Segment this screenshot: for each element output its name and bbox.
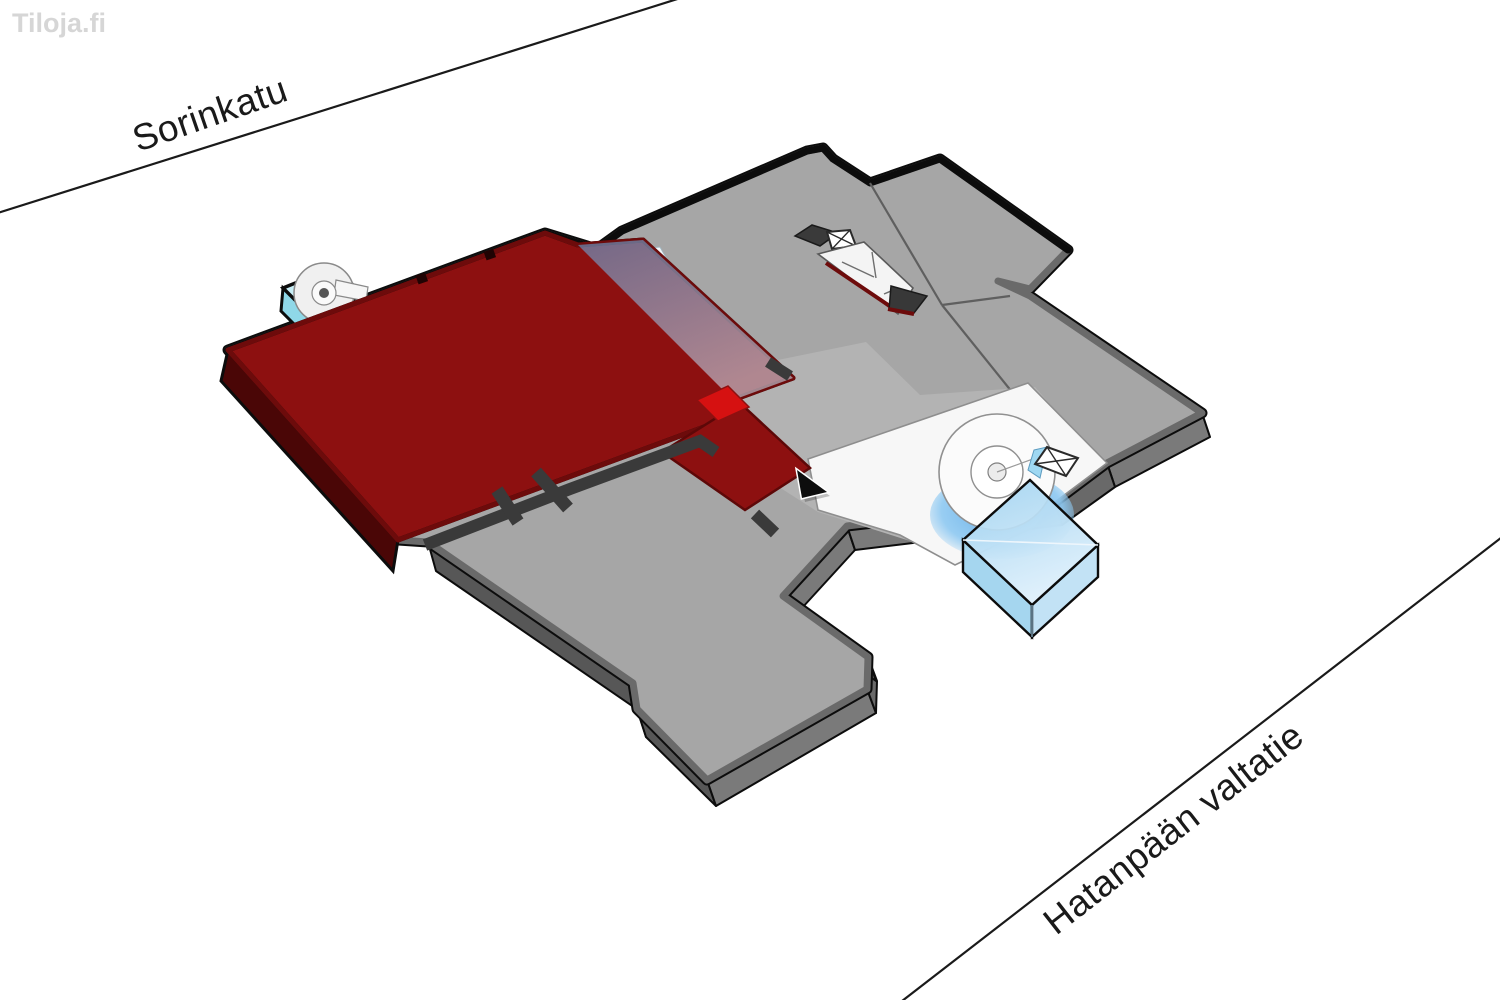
street-line-bottom [893, 534, 1500, 1000]
street-label-bottom: Hatanpään valtatie [1036, 714, 1311, 942]
floorplan-viewer: Sorinkatu Hatanpään valtatie Tiloja.fi [0, 0, 1500, 1000]
watermark-logo: Tiloja.fi [12, 8, 106, 38]
street-hatanpaan-valtatie: Hatanpään valtatie [893, 534, 1500, 1000]
stair-left-spiral-core [319, 288, 329, 298]
